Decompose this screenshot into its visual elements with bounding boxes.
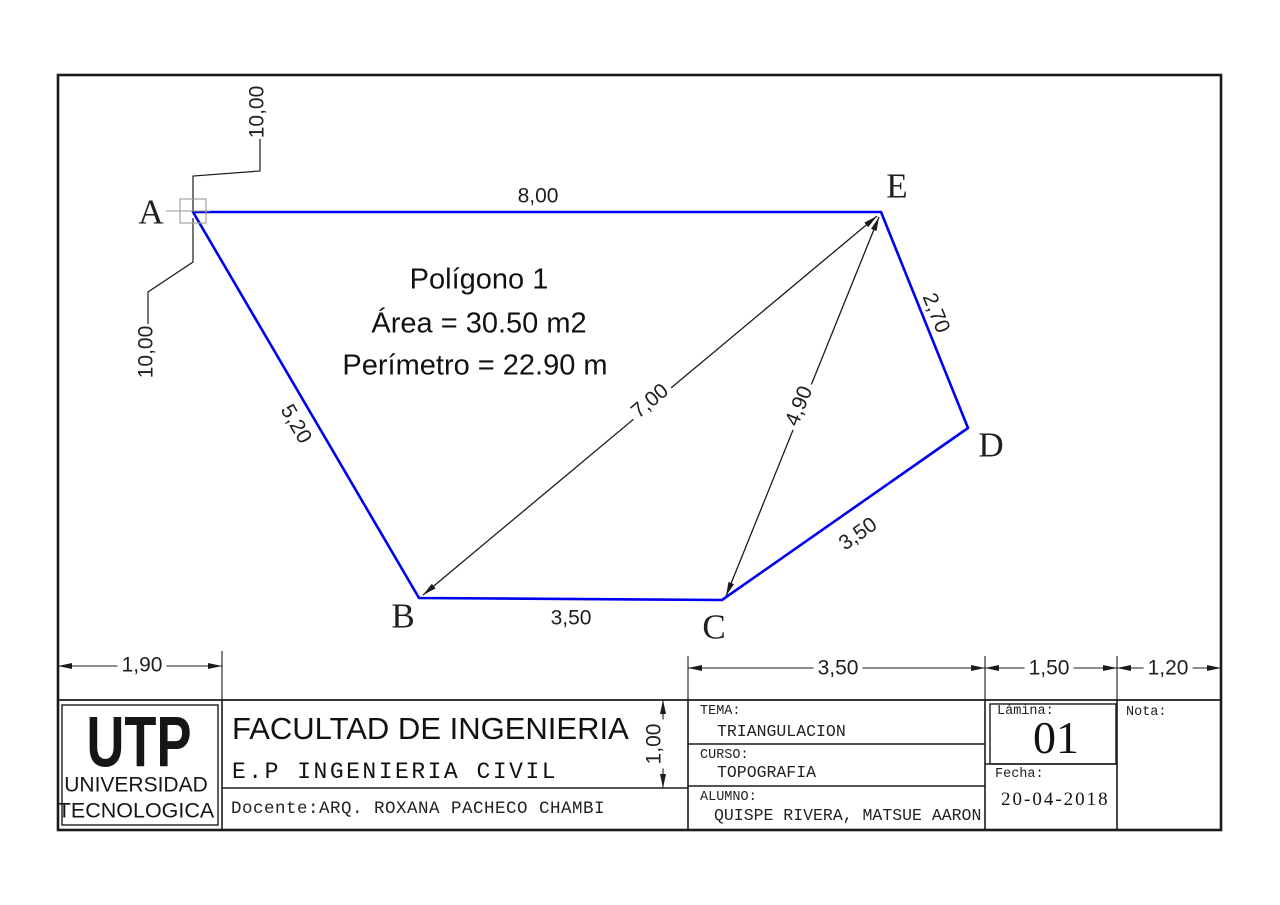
vertex-label-b: B — [391, 599, 414, 634]
logo-universidad: UNIVERSIDAD — [64, 775, 208, 796]
polygon-area-text: Área = 30.50 m2 — [371, 310, 586, 339]
dim-label-ae: 8,00 — [518, 186, 559, 207]
curso-label: CURSO: — [700, 748, 749, 764]
vertex-label-e: E — [886, 169, 907, 204]
tema-value: TRIANGULACION — [717, 723, 846, 742]
cad-sheet: Polígono 1 Área = 30.50 m2 Perímetro = 2… — [0, 0, 1280, 905]
vertex-label-d: D — [978, 428, 1003, 463]
dim-label-350-block: 3,50 — [814, 658, 863, 679]
vertex-label-c: C — [702, 610, 725, 645]
school-title: E.P INGENIERIA CIVIL — [232, 759, 558, 785]
offset-label-left: 10,00 — [136, 326, 157, 379]
fecha-label: Fecha: — [995, 767, 1044, 783]
dim-label-120: 1,20 — [1144, 658, 1193, 679]
drawing-canvas — [0, 0, 1280, 905]
dim-label-bc: 3,50 — [551, 608, 592, 629]
docente-line: Docente:ARQ. ROXANA PACHECO CHAMBI — [231, 799, 605, 819]
curso-value: TOPOGRAFIA — [717, 764, 816, 783]
logo-utp: UTP — [87, 706, 192, 778]
vertex-label-a: A — [138, 195, 163, 230]
dim-label-100: 1,00 — [644, 720, 665, 769]
polygon-perimeter-text: Perímetro = 22.90 m — [342, 352, 607, 381]
leader-offset-top — [193, 139, 260, 212]
alumno-label: ALUMNO: — [700, 790, 757, 806]
polygon-title: Polígono 1 — [410, 266, 549, 295]
tema-label: TEMA: — [700, 704, 741, 720]
leader-offset-left — [148, 218, 193, 324]
lamina-number: 01 — [1033, 715, 1079, 761]
faculty-title: FACULTAD DE INGENIERIA — [232, 711, 629, 747]
offset-label-top: 10,00 — [247, 86, 268, 139]
logo-tecnologica: TECNOLOGICA — [58, 800, 215, 822]
fecha-value: 20-04-2018 — [1001, 789, 1110, 811]
alumno-value: QUISPE RIVERA, MATSUE AARON — [714, 807, 981, 826]
nota-label: Nota: — [1126, 705, 1167, 721]
dim-label-150: 1,50 — [1025, 658, 1074, 679]
dim-label-190: 1,90 — [118, 655, 167, 676]
